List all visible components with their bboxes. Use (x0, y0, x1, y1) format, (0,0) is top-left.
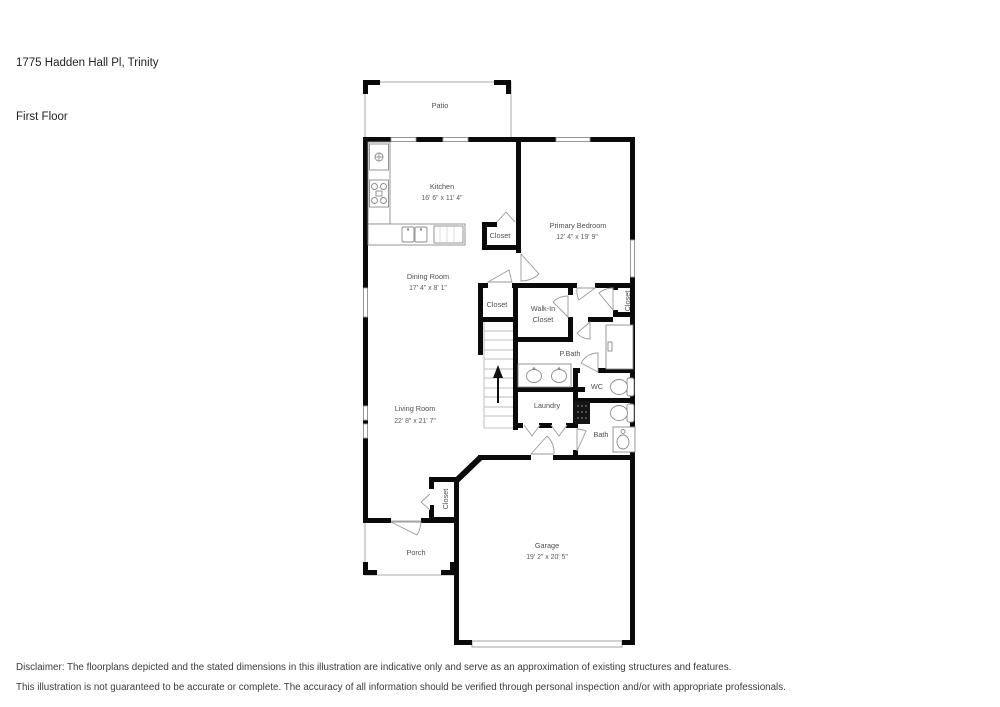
room-label-closet-entry: Closet (441, 489, 450, 510)
laundry-bifold-right (551, 425, 567, 436)
room-label-walkin-2: Closet (533, 315, 554, 324)
doors (391, 212, 613, 535)
dishwasher-icon (434, 226, 463, 243)
room-label-closet-kitchen: Closet (490, 231, 511, 240)
room-label-primary-bedroom: Primary Bedroom (550, 221, 607, 230)
laundry-bifold-left (524, 425, 540, 436)
walkin-closet-door (553, 296, 568, 317)
kitchen-fixtures (368, 142, 465, 245)
room-label-laundry: Laundry (534, 401, 561, 410)
wc-toilet-icon (611, 378, 635, 396)
room-label-walkin-1: Walk-In (531, 304, 555, 313)
disclaimer-line-1: Disclaimer: The floorplans depicted and … (16, 662, 731, 673)
floor-title: First Floor (16, 108, 159, 126)
bedroom-closet-door (599, 288, 613, 310)
wc-door (581, 353, 598, 372)
stove-icon (370, 180, 389, 207)
hall-closet-door (488, 270, 512, 282)
garage-door (472, 641, 622, 647)
pbath-door (577, 322, 590, 339)
room-dims-dining: 17' 4" x 8' 1" (409, 285, 447, 292)
bath-door (577, 429, 586, 451)
room-label-kitchen: Kitchen (430, 182, 454, 191)
entry-closet-door (421, 494, 430, 510)
room-dims-primary-bedroom: 12' 4" x 19' 9" (556, 234, 598, 241)
washer-icon (574, 401, 590, 424)
room-label-living: Living Room (395, 404, 436, 413)
floorplan-page: 1775 Hadden Hall Pl, Trinity First Floor (0, 0, 1000, 707)
room-label-dining: Dining Room (407, 272, 449, 281)
fridge-icon (370, 144, 389, 170)
double-vanity-sinks-icon (518, 364, 571, 387)
room-label-bath: Bath (593, 430, 608, 439)
bedroom-hall-door (577, 288, 595, 300)
room-label-closet-bedroom: Closet (623, 291, 632, 312)
room-label-patio: Patio (432, 101, 449, 110)
plan-header: 1775 Hadden Hall Pl, Trinity First Floor (16, 18, 159, 162)
disclaimer-line-2: This illustration is not guaranteed to b… (16, 682, 786, 693)
bedroom-door (521, 254, 539, 281)
room-label-pbath: P.Bath (560, 349, 581, 358)
room-label-closet-hall: Closet (487, 300, 508, 309)
room-dims-garage: 19' 2" x 20' 5" (526, 554, 568, 561)
bath-tub-icon (611, 404, 635, 422)
room-dims-kitchen: 16' 6" x 11' 4" (421, 195, 463, 202)
garage-entry-door (531, 436, 554, 454)
front-door (391, 522, 421, 535)
room-dims-living: 22' 8" x 21' 7" (394, 418, 436, 425)
room-label-porch: Porch (406, 548, 425, 557)
room-label-garage: Garage (535, 541, 559, 550)
shower-icon (606, 325, 633, 369)
bath-vanity-icon (613, 427, 635, 452)
address-title: 1775 Hadden Hall Pl, Trinity (16, 54, 159, 72)
kitchen-closet-door (497, 212, 515, 222)
room-label-wc: WC (591, 382, 603, 391)
stairs (478, 322, 513, 428)
